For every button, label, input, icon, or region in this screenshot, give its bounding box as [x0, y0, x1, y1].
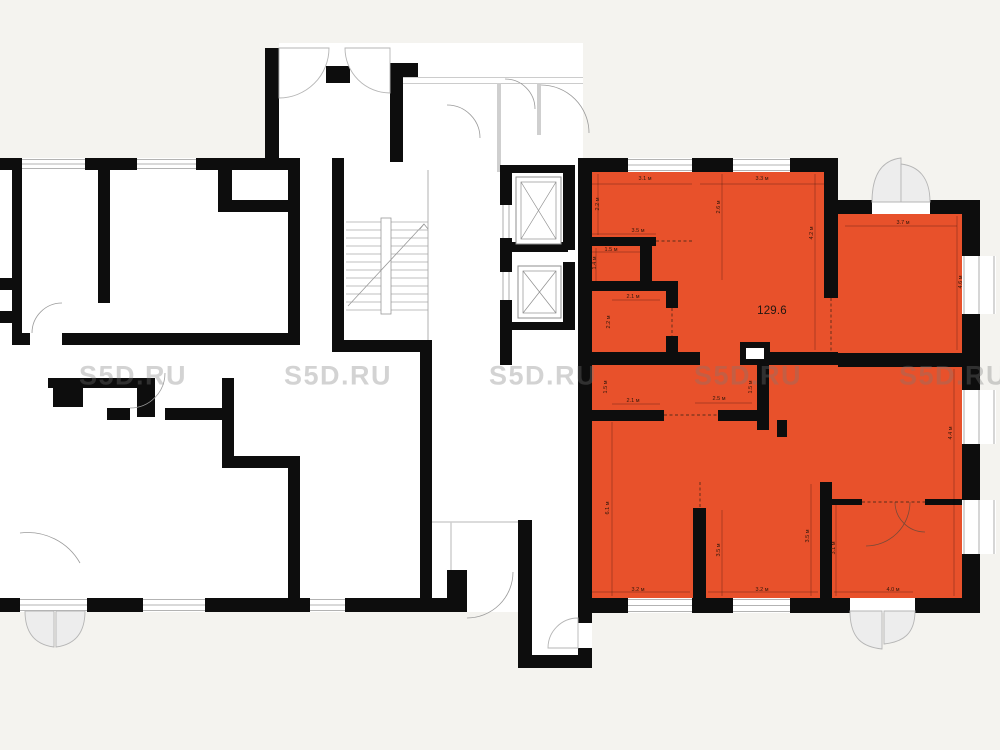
- floorplan-drawing: [0, 0, 1000, 750]
- left-building: [0, 43, 592, 668]
- floorplan-canvas: 129.6 3.1 м3.3 м3.5 м1.5 м3.7 м2.1 м2.1 …: [0, 0, 1000, 750]
